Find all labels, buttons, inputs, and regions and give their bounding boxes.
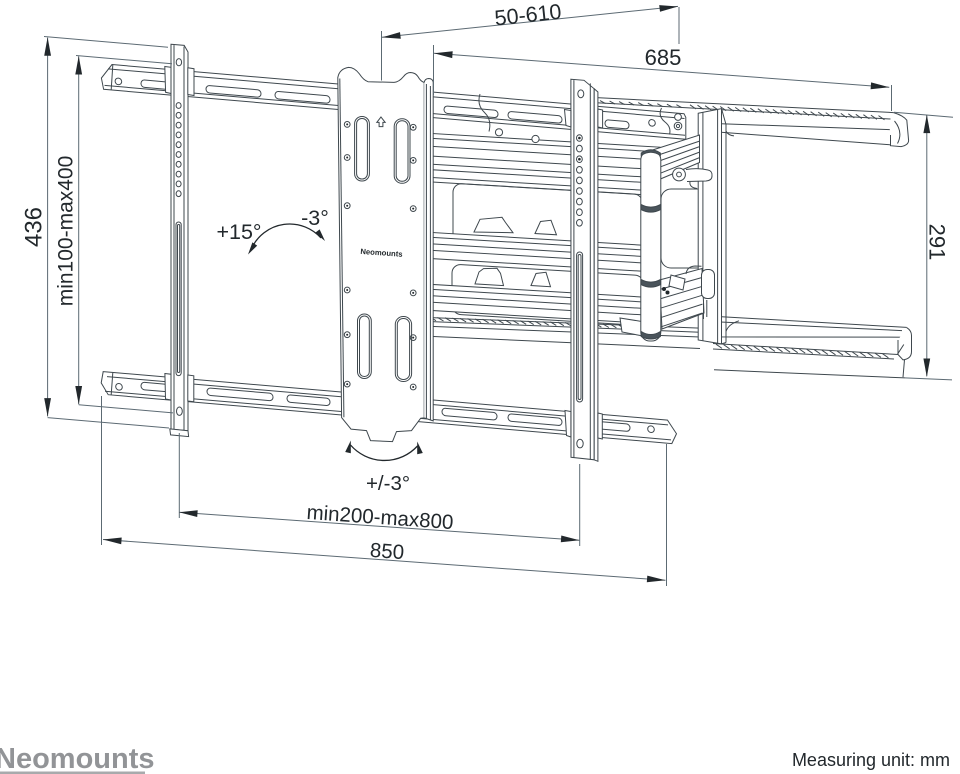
svg-text:850: 850	[369, 539, 405, 564]
svg-text:min100-max400: min100-max400	[55, 156, 78, 307]
svg-text:+/-3°: +/-3°	[366, 472, 410, 495]
svg-text:436: 436	[20, 207, 47, 247]
svg-text:685: 685	[645, 45, 682, 70]
svg-text:291: 291	[925, 224, 950, 261]
svg-text:Measuring unit: mm: Measuring unit: mm	[792, 750, 950, 770]
svg-text:-3°: -3°	[301, 206, 329, 230]
svg-text:Neomounts: Neomounts	[0, 743, 155, 774]
svg-text:+15°: +15°	[216, 220, 261, 244]
